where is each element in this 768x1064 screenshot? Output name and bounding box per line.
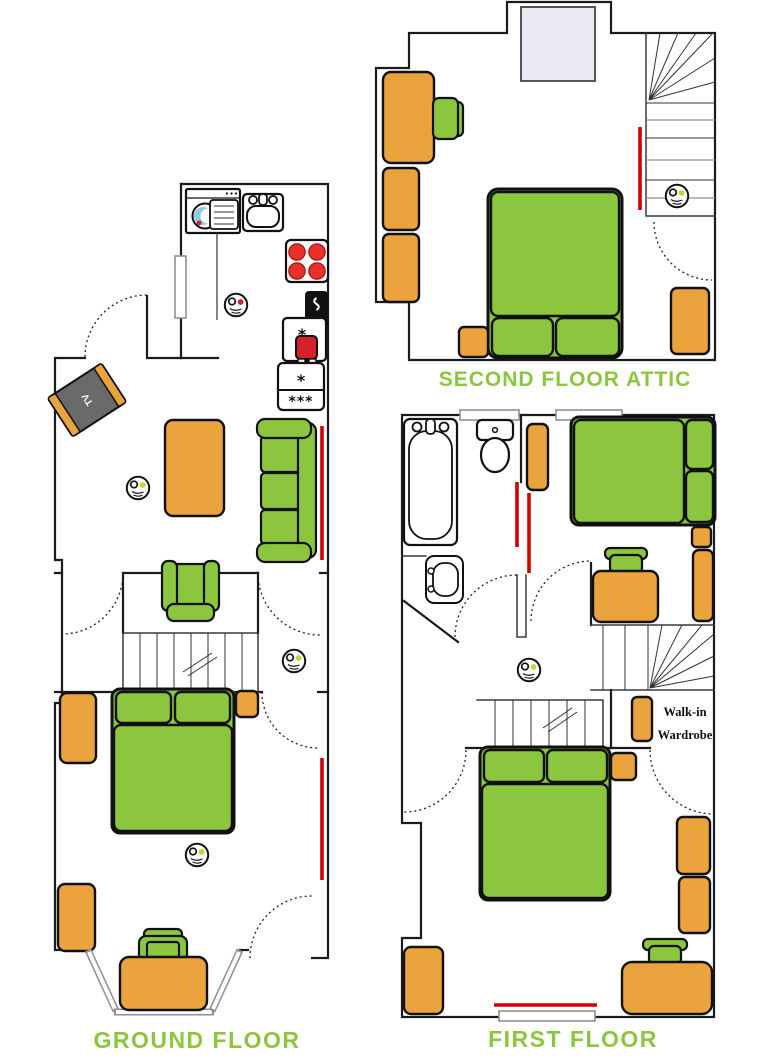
bedroom1-door-arc [404,750,466,812]
bathroom-door-arc [455,575,517,637]
pillow [556,318,619,356]
boiler-tap [296,336,317,359]
mattress [491,192,619,316]
coffee-table [165,420,224,516]
first-main-stairs [477,700,603,748]
freezer-stars-label: *** [289,394,314,410]
mattress [114,725,232,831]
bedroom-door-arc [262,692,318,748]
wardrobe [383,168,419,230]
rear-door-arc [250,896,312,958]
desk [383,72,434,163]
smoke-alarm-icon [666,185,688,207]
house-floor-plans: .burner{r:8.2} * * *** TV [0,0,768,1064]
smoke-alarm-icon [127,477,149,499]
living-door-left-arc [62,573,123,634]
desk [120,957,207,1010]
bathroom [402,415,526,642]
wardrobe [527,424,548,490]
skylight [521,7,595,81]
attic-floor-label: SECOND FLOOR ATTIC [439,368,692,391]
wardrobe [693,550,713,621]
kitchen: .burner{r:8.2} * * *** [186,189,328,410]
tv-unit: TV [48,363,127,436]
bedroom2-door-arc [531,561,591,621]
wardrobe [58,884,95,951]
first-bedroom-2 [527,417,715,622]
walk-in-label-line2: Wardrobe [658,728,713,742]
armchair [162,561,219,621]
mattress [482,784,608,898]
attic-desk-area [383,72,463,163]
first-upper-stairs [591,625,714,690]
bay-desk-area [120,929,207,1010]
fridge-star-label: * [297,371,306,390]
attic-bed [488,189,622,358]
window [460,410,519,420]
ground-floor-label: GROUND FLOOR [93,1027,300,1053]
pillow [116,692,171,723]
smoke-alarm-icon [186,844,208,866]
wardrobe [383,234,419,302]
smoke-alarm-icon [518,659,540,681]
wardrobe [677,817,710,874]
bedroom1-door2-arc [650,750,714,814]
chair-seat [433,98,458,139]
heat-alarm-icon [225,294,247,316]
wardrobe [679,877,710,933]
pillow [686,420,713,469]
living-door-right-arc [258,573,320,635]
wardrobe [404,947,443,1014]
first-floor-label: FIRST FLOOR [488,1026,658,1052]
sofa [257,419,316,562]
desk [593,571,658,622]
pillow [686,471,713,522]
pillow [492,318,553,356]
bedside-table [611,753,636,780]
first-floor-plan: Walk-in Wardrobe [402,410,715,1052]
walk-in-wardrobe-unit [632,697,652,741]
bedside-table [692,527,711,547]
kitchen-window [175,256,186,318]
chair-seat [147,942,179,958]
ground-bedroom [58,689,322,951]
walk-in-wardrobe: Walk-in Wardrobe [611,690,713,748]
pillow [484,750,544,782]
ground-stairs [123,633,258,692]
desk [622,962,712,1014]
rug [671,288,709,354]
bedside-table [459,327,488,357]
walk-in-label-line1: Walk-in [663,705,706,719]
pillow [175,692,230,723]
wardrobe [60,693,96,763]
first-bedroom-1 [404,747,712,1021]
smoke-alarm-icon [283,650,305,672]
bedside-table [236,691,258,717]
window [499,1011,595,1021]
front-door-arc [85,295,147,357]
pillow [547,750,607,782]
ground-floor-plan: .burner{r:8.2} * * *** TV [48,184,328,1053]
attic-door-arc [654,222,712,280]
mattress [574,420,684,523]
attic-floor-plan: SECOND FLOOR ATTIC [376,2,715,391]
